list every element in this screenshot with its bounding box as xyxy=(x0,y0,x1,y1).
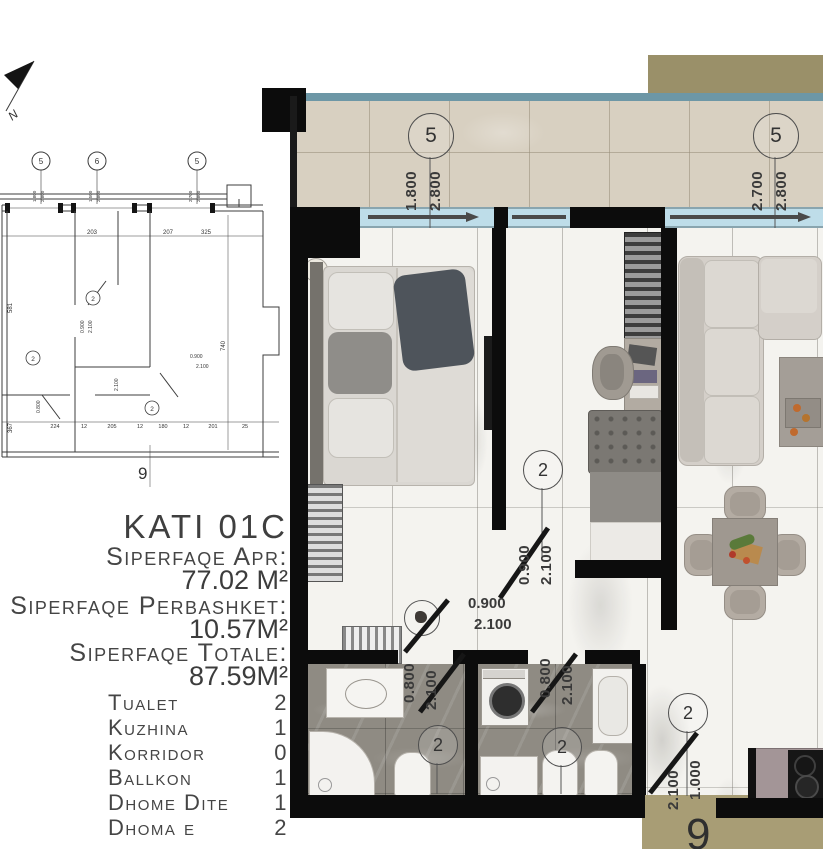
pillow xyxy=(328,398,394,458)
room-name: Kuzhina xyxy=(108,715,189,740)
wall xyxy=(290,207,308,818)
sofa-cushion xyxy=(704,396,760,464)
tech-dim: 180 xyxy=(158,424,167,430)
wall xyxy=(575,560,677,578)
sink xyxy=(326,668,404,718)
sofa-cushion xyxy=(704,328,760,396)
tech-door-dim: 0.900 xyxy=(80,320,86,333)
room-list-item: Korridor0 xyxy=(108,740,288,765)
balcony-edge xyxy=(290,93,823,101)
dim-label: 1.000 xyxy=(688,742,703,800)
tech-window-dim: 1.800 xyxy=(32,190,37,202)
room-count: 1 xyxy=(274,765,288,790)
sofa-backrest xyxy=(680,258,704,462)
tech-door-dim: 2.100 xyxy=(114,378,120,391)
technical-drawing: N 5 6 5 1.800 2.800 1.500 2.800 2.700 2.… xyxy=(0,55,290,505)
plan-title: KATI 01C xyxy=(123,508,288,546)
tech-dim: 12 xyxy=(137,424,143,430)
tech-door-dim: 2.100 xyxy=(88,320,94,333)
dim-label: 1.800 xyxy=(404,153,419,211)
balcony-floor xyxy=(290,101,823,207)
tech-dim: 207 xyxy=(163,230,174,236)
room-name: Ballkon xyxy=(108,765,192,790)
dim-label: 2.100 xyxy=(666,752,681,810)
bed2-blanket xyxy=(590,472,661,522)
dim-label: 0.900 xyxy=(517,527,532,585)
bed1-throw-blanket xyxy=(392,268,475,372)
tan-block-top xyxy=(648,55,823,96)
north-arrow-icon xyxy=(4,61,34,89)
wall xyxy=(716,798,823,818)
room-list-item: Dhoma e fjetjes2 xyxy=(108,815,288,840)
wall xyxy=(570,207,665,228)
tech-dim: 2.100 xyxy=(196,364,209,370)
grid-bubble-bottom: 9 xyxy=(686,810,710,849)
room-name: Tualet xyxy=(108,690,179,715)
bed2-sheet xyxy=(590,522,663,562)
room-list-item: Dhome Dite1 xyxy=(108,790,288,815)
tech-grid-bubble: 5 xyxy=(195,157,200,166)
tech-window-dim: 2.800 xyxy=(196,190,201,202)
wall xyxy=(494,207,508,228)
door-bubble-bathroom2: 2 xyxy=(542,727,582,767)
room-name: Dhome Dite xyxy=(108,790,229,815)
door-bubble-bedroom2: 2 xyxy=(523,450,563,490)
tech-dim: 224 xyxy=(50,424,59,430)
tech-dim: 203 xyxy=(87,230,98,236)
tech-circle-label: 2 xyxy=(150,406,154,413)
door-bubble-hall: 2 xyxy=(668,693,708,733)
tech-dim: 201 xyxy=(208,424,217,430)
tech-window-dim: 1.500 xyxy=(88,190,93,202)
room-list-item: Tualet2 xyxy=(108,690,288,715)
dim-label: 0.800 xyxy=(402,645,417,703)
bathtub xyxy=(592,668,634,744)
shower-tray xyxy=(480,756,538,798)
room-list-item: Ballkon1 xyxy=(108,765,288,790)
dining-chair xyxy=(724,486,766,522)
bidet xyxy=(584,750,618,797)
tech-dim: 325 xyxy=(201,230,212,236)
counter-edge xyxy=(748,748,756,798)
dim-label: 0.800 xyxy=(538,640,553,698)
tech-dim: 12 xyxy=(81,424,87,430)
room-count: 1 xyxy=(274,790,288,815)
dim-label: 2.100 xyxy=(539,527,554,585)
sofa-cushion xyxy=(704,260,760,328)
wall xyxy=(465,664,478,795)
washing-machine xyxy=(481,668,529,726)
tech-door-dim: 0.800 xyxy=(36,400,42,413)
pillow xyxy=(328,332,392,394)
dim-label: 2.700 xyxy=(750,153,765,211)
tech-dim: 12 xyxy=(183,424,189,430)
room-name: Korridor xyxy=(108,740,206,765)
dining-table xyxy=(712,518,778,586)
dim-label: 2.100 xyxy=(474,617,512,632)
room-count: 1 xyxy=(274,715,288,740)
bed1-headboard xyxy=(310,262,323,488)
north-label: N xyxy=(5,107,21,124)
tech-dim: 25 xyxy=(242,424,248,430)
room-count: 2 xyxy=(274,815,288,840)
tech-dim: 367 xyxy=(8,422,14,433)
tech-grid-bubble: 5 xyxy=(39,157,44,166)
wall xyxy=(308,650,398,664)
desk-chair xyxy=(592,346,634,400)
room-count: 0 xyxy=(274,740,288,765)
dim-label: 2.800 xyxy=(774,153,789,211)
tech-grid-bubble: 6 xyxy=(95,157,100,166)
stove-hob xyxy=(788,750,823,798)
tech-circle-label: 2 xyxy=(91,296,95,303)
dim-label: 2.800 xyxy=(428,153,443,211)
room-name: Dhoma e fjetjes xyxy=(108,815,274,840)
tv xyxy=(484,336,492,430)
tech-dim: 205 xyxy=(107,424,116,430)
shelf-unit xyxy=(624,232,663,340)
dim-label: 2.100 xyxy=(424,652,439,710)
pillow xyxy=(328,272,394,330)
area-value: 87.59M² xyxy=(189,661,288,692)
tech-dim: 740 xyxy=(221,340,227,351)
wall xyxy=(632,664,646,795)
wall xyxy=(585,650,640,664)
tech-window-dim: 2.800 xyxy=(96,190,101,202)
floor-plan-sheet: N 5 6 5 1.800 2.800 1.500 2.800 2.700 2.… xyxy=(0,0,823,849)
window-band xyxy=(290,207,823,228)
wall xyxy=(453,650,528,664)
sofa-chaise xyxy=(758,256,822,340)
tech-dim: 581 xyxy=(8,302,14,313)
wall xyxy=(290,795,645,818)
tech-window-dim: 2.800 xyxy=(40,190,45,202)
dim-label: 0.900 xyxy=(468,596,506,611)
balcony-side-wall xyxy=(290,96,297,207)
tech-circle-label: 2 xyxy=(31,356,35,363)
tech-grid-bottom-label: 9 xyxy=(138,464,147,483)
room-list-item: Kuzhina1 xyxy=(108,715,288,740)
tech-window-dim: 2.700 xyxy=(188,190,193,202)
ceiling-light-symbol xyxy=(404,600,440,636)
wall xyxy=(492,228,506,530)
tech-dim: 0.900 xyxy=(190,354,203,360)
coffee-table xyxy=(779,357,823,447)
dim-label: 2.100 xyxy=(560,647,575,705)
room-count: 2 xyxy=(274,690,288,715)
wall-block xyxy=(262,88,306,132)
bed2-headboard xyxy=(588,410,663,474)
room-list: Tualet2 Kuzhina1 Korridor0 Ballkon1 Dhom… xyxy=(108,690,288,840)
door-bubble-bathroom1: 2 xyxy=(418,725,458,765)
desk-notebook xyxy=(629,385,659,399)
dining-chair xyxy=(724,584,766,620)
